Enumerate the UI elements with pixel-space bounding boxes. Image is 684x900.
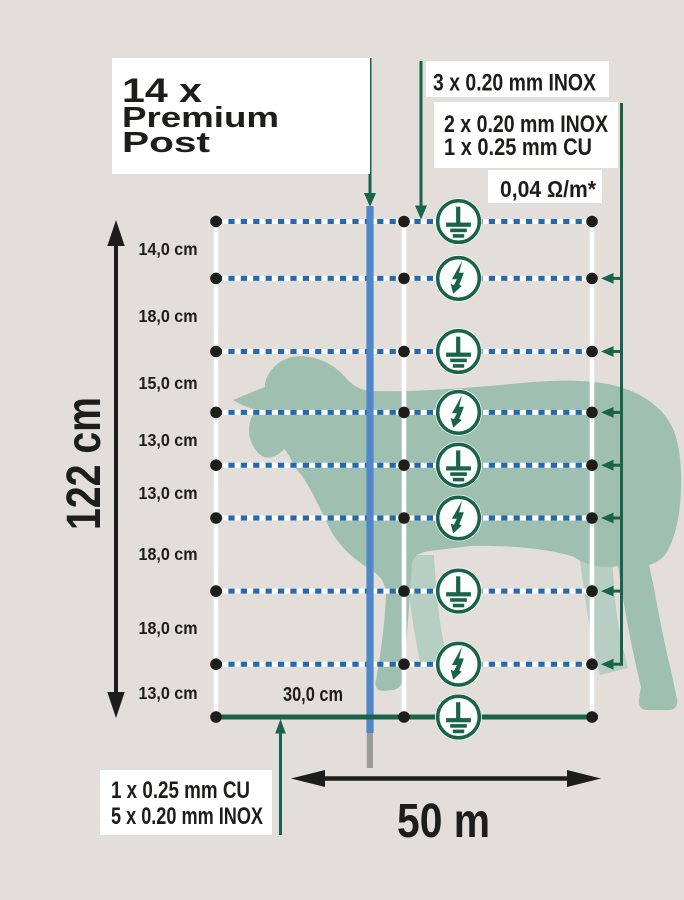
- svg-text:122 cm: 122 cm: [58, 397, 111, 530]
- svg-text:14,0 cm: 14,0 cm: [139, 239, 198, 259]
- svg-text:18,0 cm: 18,0 cm: [139, 618, 198, 638]
- svg-text:30,0 cm: 30,0 cm: [283, 684, 343, 706]
- svg-text:0,04 Ω/m*: 0,04 Ω/m*: [500, 176, 596, 202]
- svg-text:5 x 0.20 mm INOX: 5 x 0.20 mm INOX: [111, 803, 263, 830]
- svg-text:1 x 0.25 mm CU: 1 x 0.25 mm CU: [111, 777, 250, 804]
- svg-text:Post: Post: [122, 127, 210, 159]
- svg-text:15,0 cm: 15,0 cm: [139, 373, 198, 393]
- svg-text:13,0 cm: 13,0 cm: [139, 430, 198, 450]
- svg-text:18,0 cm: 18,0 cm: [139, 306, 198, 326]
- svg-text:1 x 0.25 mm CU: 1 x 0.25 mm CU: [444, 134, 592, 161]
- svg-text:13,0 cm: 13,0 cm: [139, 483, 198, 503]
- svg-text:50 m: 50 m: [397, 795, 490, 848]
- svg-text:13,0 cm: 13,0 cm: [139, 683, 198, 703]
- svg-text:18,0 cm: 18,0 cm: [139, 544, 198, 564]
- svg-text:3 x 0.20 mm INOX: 3 x 0.20 mm INOX: [433, 70, 597, 97]
